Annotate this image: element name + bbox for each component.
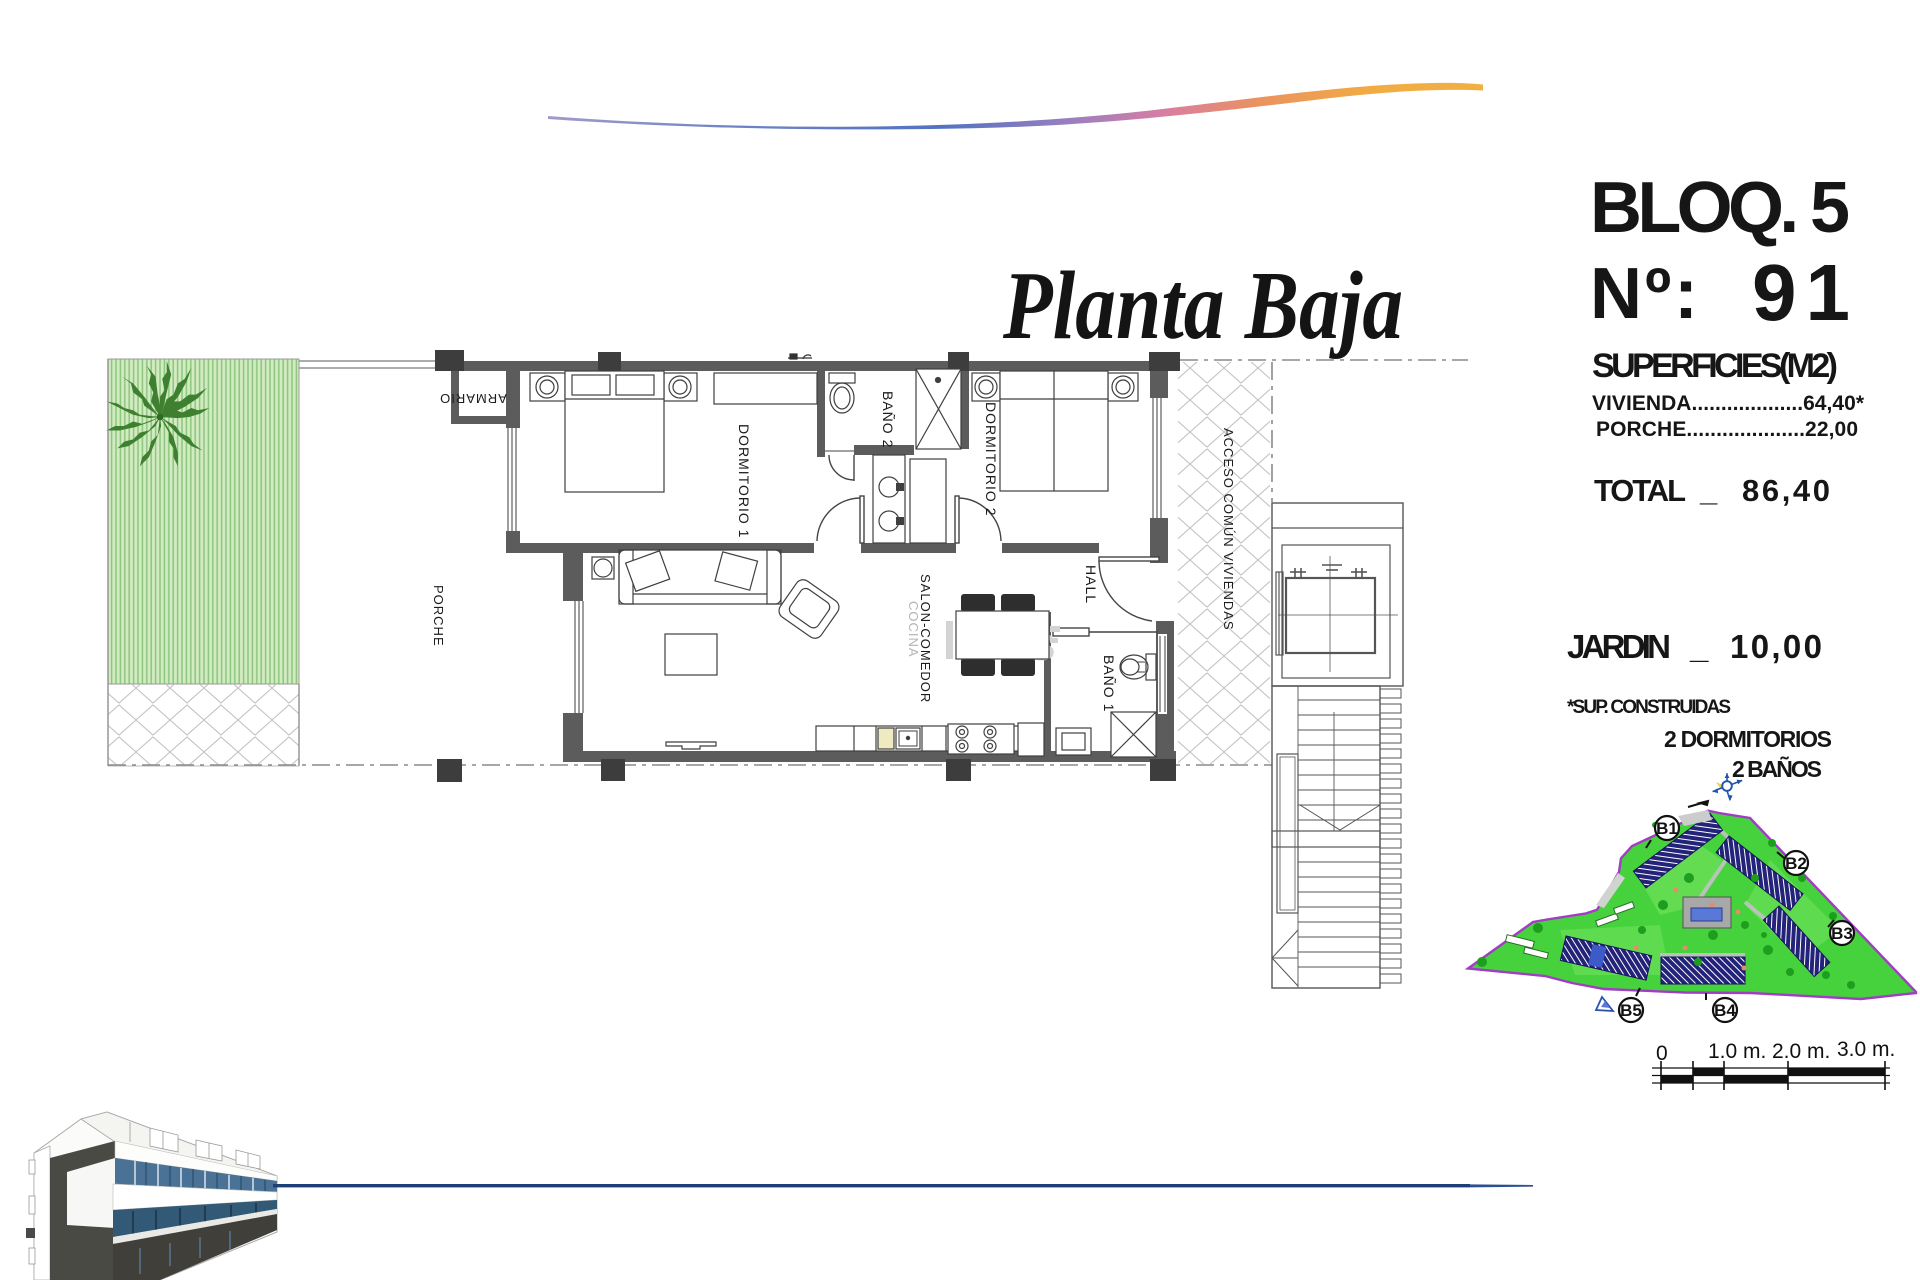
svg-text:86,40: 86,40 — [1742, 473, 1830, 508]
svg-text:2 DORMITORIOS: 2 DORMITORIOS — [1664, 726, 1832, 752]
svg-text:VIVIENDA...................64,: VIVIENDA...................64,40* — [1592, 392, 1865, 415]
svg-text:10,00: 10,00 — [1730, 628, 1822, 665]
svg-text:ARMARIO: ARMARIO — [439, 391, 507, 406]
svg-text:Nº:: Nº: — [1590, 254, 1698, 334]
svg-text:0: 0 — [1656, 1042, 1668, 1065]
svg-text:91: 91 — [1752, 248, 1850, 337]
svg-text:_: _ — [1689, 628, 1709, 665]
svg-text:B5: B5 — [1620, 1001, 1642, 1020]
svg-text:ACCESO COMÚN VIVIENDAS: ACCESO COMÚN VIVIENDAS — [1221, 428, 1236, 631]
svg-text:*SUP. CONSTRUIDAS: *SUP. CONSTRUIDAS — [1567, 697, 1731, 718]
svg-text:1.0 m.: 1.0 m. — [1708, 1040, 1766, 1063]
svg-text:B1: B1 — [1656, 819, 1678, 838]
svg-text:B3: B3 — [1831, 924, 1853, 943]
svg-text:SUPERFICIES(M2): SUPERFICIES(M2) — [1592, 347, 1838, 385]
svg-text:PORCHE....................22,0: PORCHE....................22,00 — [1596, 418, 1858, 441]
svg-text:TOTAL: TOTAL — [1594, 473, 1686, 508]
svg-text:BAÑO 2: BAÑO 2 — [880, 391, 896, 448]
svg-text:_: _ — [1699, 473, 1718, 508]
svg-text:2.0 m.: 2.0 m. — [1772, 1040, 1830, 1063]
svg-text:BLOQ. 5: BLOQ. 5 — [1590, 168, 1850, 248]
svg-text:JARDIN: JARDIN — [1567, 628, 1671, 665]
svg-text:DORMITORIO 1: DORMITORIO 1 — [736, 424, 752, 538]
svg-text:BAÑO 1: BAÑO 1 — [1101, 655, 1117, 712]
svg-text:PORCHE: PORCHE — [431, 585, 446, 647]
svg-text:2 BAÑOS: 2 BAÑOS — [1732, 755, 1822, 782]
svg-text:COCINA: COCINA — [906, 601, 921, 658]
svg-text:B4: B4 — [1714, 1001, 1736, 1020]
svg-text:DORMITORIO 2: DORMITORIO 2 — [983, 402, 999, 516]
svg-text:HALL: HALL — [1083, 565, 1099, 604]
svg-text:3.0 m.: 3.0 m. — [1837, 1038, 1895, 1061]
svg-text:Planta Baja: Planta Baja — [1002, 252, 1403, 359]
svg-text:B2: B2 — [1785, 854, 1807, 873]
